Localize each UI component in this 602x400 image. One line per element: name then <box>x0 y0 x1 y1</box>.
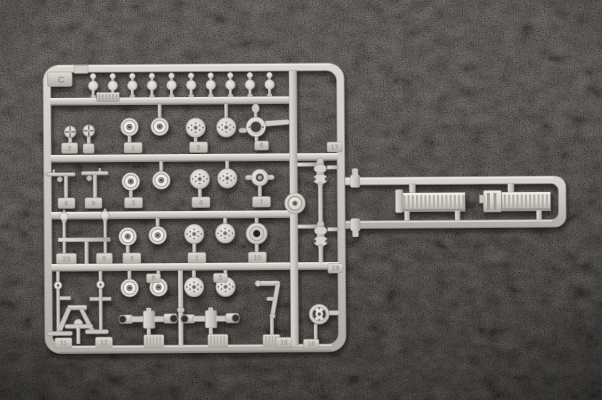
svg-text:1: 1 <box>195 255 199 262</box>
svg-text:16: 16 <box>280 340 288 347</box>
svg-text:5: 5 <box>218 275 222 282</box>
svg-text:4: 4 <box>199 200 203 207</box>
svg-text:C: C <box>58 75 65 85</box>
svg-text:10: 10 <box>253 255 261 262</box>
svg-text:6: 6 <box>64 201 68 208</box>
svg-text:19: 19 <box>331 265 339 272</box>
svg-text:3: 3 <box>131 200 135 207</box>
svg-text:7: 7 <box>259 199 263 206</box>
svg-text:8: 8 <box>152 275 156 282</box>
svg-text:1: 1 <box>131 145 135 152</box>
svg-text:12: 12 <box>100 340 108 347</box>
svg-text:6: 6 <box>260 142 264 149</box>
svg-text:9: 9 <box>91 201 95 208</box>
svg-text:2: 2 <box>68 146 72 153</box>
svg-text:17: 17 <box>331 144 339 151</box>
svg-text:23: 23 <box>62 256 70 263</box>
svg-text:16: 16 <box>307 341 315 348</box>
svg-text:3: 3 <box>130 256 134 263</box>
svg-text:5: 5 <box>197 145 201 152</box>
svg-text:11: 11 <box>60 340 68 347</box>
svg-text:9: 9 <box>102 256 106 263</box>
